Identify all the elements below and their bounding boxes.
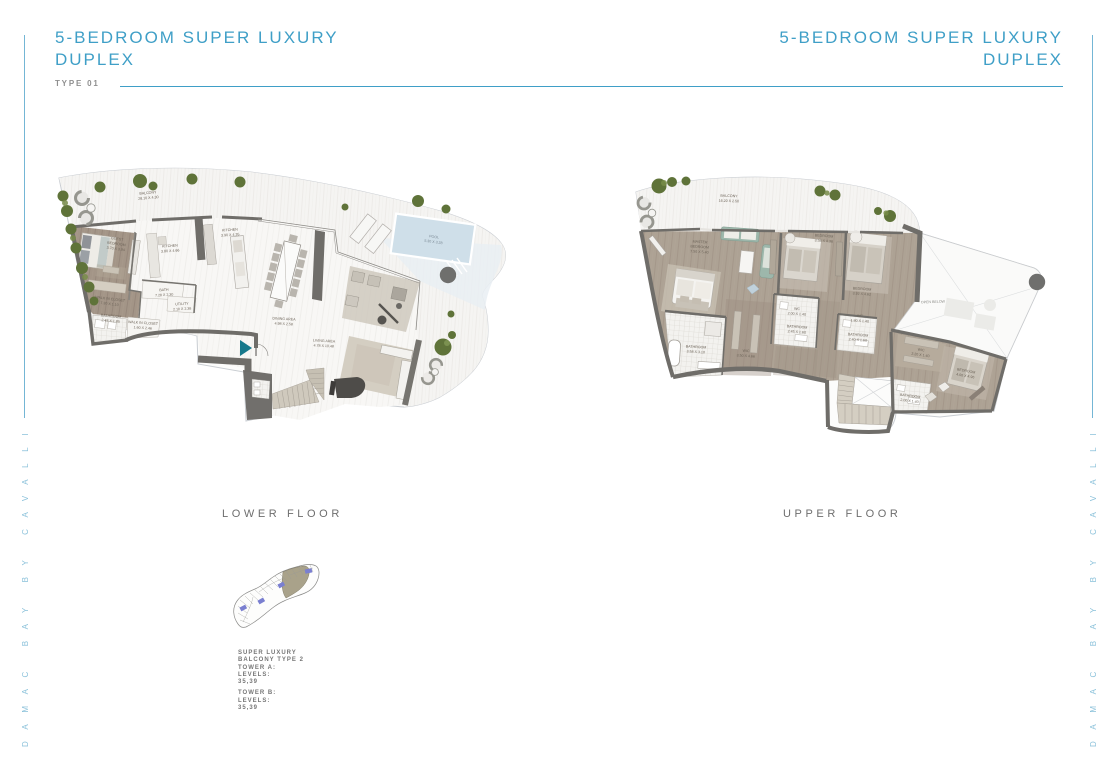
svg-text:UTILITY: UTILITY [175,302,189,307]
svg-text:WC: WC [794,307,801,311]
svg-text:BALCONY: BALCONY [720,194,738,199]
svg-text:WIC: WIC [742,349,750,354]
svg-text:WC: WC [857,314,864,318]
svg-text:16.20 X 2.50: 16.20 X 2.50 [719,199,740,204]
svg-text:BATH: BATH [159,288,169,293]
